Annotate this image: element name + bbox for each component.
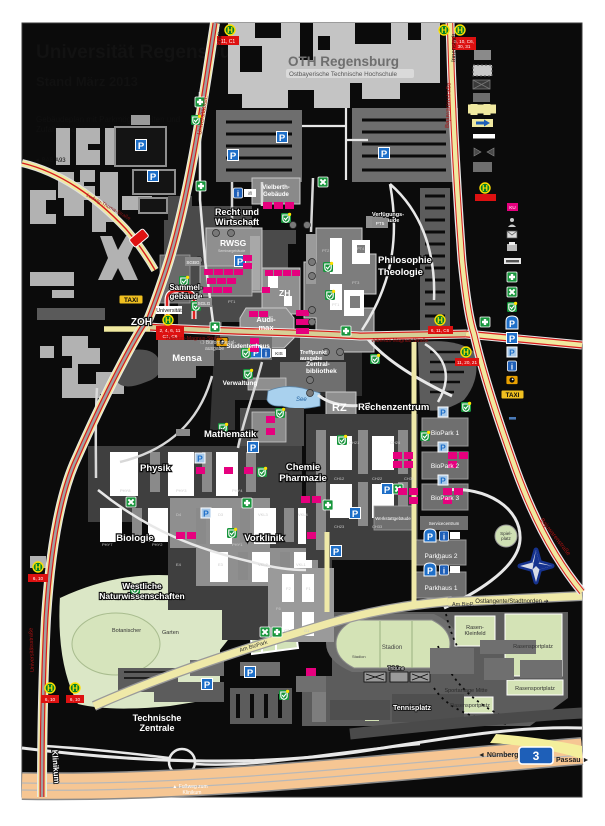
- svg-text:See: See: [296, 397, 307, 403]
- svg-text:PT5: PT5: [376, 221, 385, 227]
- svg-text:Innenstadt: Innenstadt: [451, 34, 458, 63]
- svg-text:G2: G2: [284, 628, 290, 633]
- svg-text:Zentral-: Zentral-: [306, 361, 330, 368]
- svg-text:Werkstattgebäude: Werkstattgebäude: [375, 516, 411, 521]
- svg-text:platz: platz: [501, 536, 511, 541]
- svg-text:VKL1: VKL1: [296, 562, 307, 567]
- svg-text:PT4: PT4: [357, 246, 365, 251]
- svg-text:6, 10: 6, 10: [33, 576, 44, 581]
- svg-text:2, 4, 6, 11: 2, 4, 6, 11: [160, 328, 181, 334]
- svg-text:Am BioP.: Am BioP.: [452, 602, 475, 608]
- svg-text:PHY4: PHY4: [232, 488, 243, 493]
- svg-text:3: 3: [533, 749, 540, 763]
- svg-text:PT1: PT1: [332, 302, 340, 307]
- svg-text:Klinikum: Klinikum: [183, 790, 202, 796]
- svg-text:ifl: ifl: [248, 191, 251, 196]
- svg-text:Rasensportplatz: Rasensportplatz: [450, 703, 490, 709]
- svg-text:Seminargebäude: Seminargebäude: [218, 249, 245, 253]
- svg-text:Rechenzentrum: Rechenzentrum: [358, 402, 429, 413]
- svg-text:SGLG: SGLG: [198, 301, 211, 306]
- svg-text:Physik: Physik: [140, 463, 171, 474]
- svg-text:CH32: CH32: [404, 476, 415, 481]
- svg-text:D4: D4: [176, 512, 182, 517]
- svg-text:Verwaltung: Verwaltung: [223, 380, 258, 387]
- svg-text:6, 10: 6, 10: [45, 697, 56, 702]
- svg-text:CH21: CH21: [349, 440, 360, 445]
- svg-text:Pharmazie: Pharmazie: [279, 473, 327, 484]
- svg-text:Recht und: Recht und: [215, 207, 259, 217]
- svg-text:Ostlangente/Stadtnorden ➔: Ostlangente/Stadtnorden ➔: [475, 599, 548, 605]
- svg-text:Gebäude: Gebäude: [263, 192, 289, 198]
- svg-text:CH24: CH24: [390, 440, 401, 445]
- svg-text:ZH: ZH: [279, 288, 290, 298]
- svg-text:OTH Regensburg: OTH Regensburg: [288, 54, 399, 69]
- svg-text:G1: G1: [304, 628, 310, 633]
- svg-text:Kleinfeld: Kleinfeld: [464, 631, 485, 637]
- svg-text:Garten: Garten: [162, 630, 179, 636]
- svg-text:PT3: PT3: [352, 280, 360, 285]
- svg-text:Servicecentrum: Servicecentrum: [429, 521, 460, 526]
- svg-text:Sportanlage Mitte: Sportanlage Mitte: [444, 688, 487, 694]
- svg-text:Stand März 2013: Stand März 2013: [36, 74, 138, 89]
- svg-text:Tribüne: Tribüne: [388, 666, 405, 672]
- svg-text:PT1: PT1: [228, 299, 236, 304]
- svg-text:VKL4: VKL4: [298, 512, 309, 517]
- svg-text:◄ Nürnberg: ◄ Nürnberg: [478, 752, 518, 759]
- svg-text:6, 11, C6: 6, 11, C6: [431, 328, 450, 333]
- svg-text:F1: F1: [306, 586, 311, 591]
- svg-text:Mathematik: Mathematik: [204, 429, 257, 440]
- svg-text:PT2: PT2: [322, 248, 330, 253]
- svg-text:Sammel-: Sammel-: [169, 283, 203, 292]
- svg-text:PHY1: PHY1: [232, 542, 243, 547]
- svg-text:F6: F6: [276, 606, 281, 611]
- svg-text:TAXI: TAXI: [124, 297, 138, 304]
- svg-text:Chemie: Chemie: [286, 462, 320, 473]
- svg-text:Mensa: Mensa: [172, 353, 202, 364]
- svg-text:6, 10: 6, 10: [70, 697, 81, 702]
- svg-text:Stadion: Stadion: [382, 645, 402, 651]
- svg-text:Studentenhaus: Studentenhaus: [226, 344, 270, 350]
- svg-text:Stadion: Stadion: [352, 654, 366, 659]
- svg-text:VKL3: VKL3: [258, 512, 269, 517]
- svg-text:Wirtschaft: Wirtschaft: [215, 217, 259, 227]
- svg-text:Vorklinik: Vorklinik: [244, 533, 284, 544]
- svg-text:BioPark 1: BioPark 1: [431, 430, 460, 437]
- svg-text:Philosophie: Philosophie: [378, 255, 432, 266]
- svg-text:CH22: CH22: [372, 476, 383, 481]
- svg-text:RZ: RZ: [332, 402, 347, 414]
- svg-text:KIS: KIS: [275, 351, 282, 356]
- svg-text:Biologie: Biologie: [116, 533, 153, 544]
- svg-text:PHY3: PHY3: [176, 488, 187, 493]
- svg-text:◄ BAB A93: ◄ BAB A93: [34, 158, 66, 164]
- svg-text:F2: F2: [286, 586, 291, 591]
- svg-text:Vielberth-: Vielberth-: [262, 185, 290, 191]
- svg-text:KU: KU: [509, 205, 515, 210]
- svg-text:11, 20, 21: 11, 20, 21: [457, 360, 478, 365]
- svg-text:ZOH: ZOH: [131, 317, 152, 328]
- svg-text:Albertus-Magnus-Straße: Albertus-Magnus-Straße: [372, 338, 429, 344]
- svg-text:Universität: Universität: [156, 308, 182, 314]
- svg-text:PHY7: PHY7: [102, 542, 113, 547]
- svg-text:Zentrale: Zentrale: [139, 723, 174, 733]
- svg-text:Naturwissenschaften: Naturwissenschaften: [99, 591, 185, 601]
- svg-text:E4: E4: [176, 562, 182, 567]
- svg-text:D3: D3: [218, 512, 224, 517]
- svg-text:RWSG: RWSG: [220, 238, 247, 248]
- svg-text:BioPark 2: BioPark 2: [431, 463, 460, 470]
- svg-text:CH12: CH12: [334, 476, 345, 481]
- svg-text:SGBG: SGBG: [186, 260, 200, 265]
- svg-text:Technische: Technische: [133, 713, 182, 723]
- svg-text:Theologie: Theologie: [378, 267, 423, 278]
- svg-text:Tennisplatz: Tennisplatz: [393, 705, 431, 712]
- svg-text:ausgabe: ausgabe: [205, 346, 224, 352]
- svg-text:Westliche: Westliche: [122, 581, 162, 591]
- svg-text:Rasensportplatz: Rasensportplatz: [515, 686, 555, 692]
- svg-text:Parkhaus 1: Parkhaus 1: [425, 585, 458, 592]
- svg-text:CH23: CH23: [334, 524, 345, 529]
- svg-text:bibliothek: bibliothek: [306, 368, 337, 375]
- svg-text:30, 31: 30, 31: [458, 44, 471, 49]
- svg-text:CH33: CH33: [372, 524, 383, 529]
- svg-text:Botanischer: Botanischer: [112, 628, 141, 634]
- svg-text:Passau ►: Passau ►: [556, 757, 589, 764]
- svg-text:Gebäudeplan mit Parkmöglichkei: Gebäudeplan mit Parkmöglichkeiten und: [36, 115, 180, 124]
- svg-text:PHY8: PHY8: [120, 488, 131, 493]
- svg-text:max: max: [258, 323, 274, 332]
- svg-text:Rasensportplatz: Rasensportplatz: [513, 644, 553, 650]
- svg-text:Parkhaus 2: Parkhaus 2: [425, 553, 458, 560]
- svg-text:VKL2: VKL2: [258, 562, 269, 567]
- svg-text:BioPark 3: BioPark 3: [431, 495, 460, 502]
- svg-text:E3: E3: [218, 562, 224, 567]
- svg-text:TAXI: TAXI: [506, 392, 520, 399]
- svg-text:Ostbayerische Technische Hochs: Ostbayerische Technische Hochschule: [289, 71, 398, 78]
